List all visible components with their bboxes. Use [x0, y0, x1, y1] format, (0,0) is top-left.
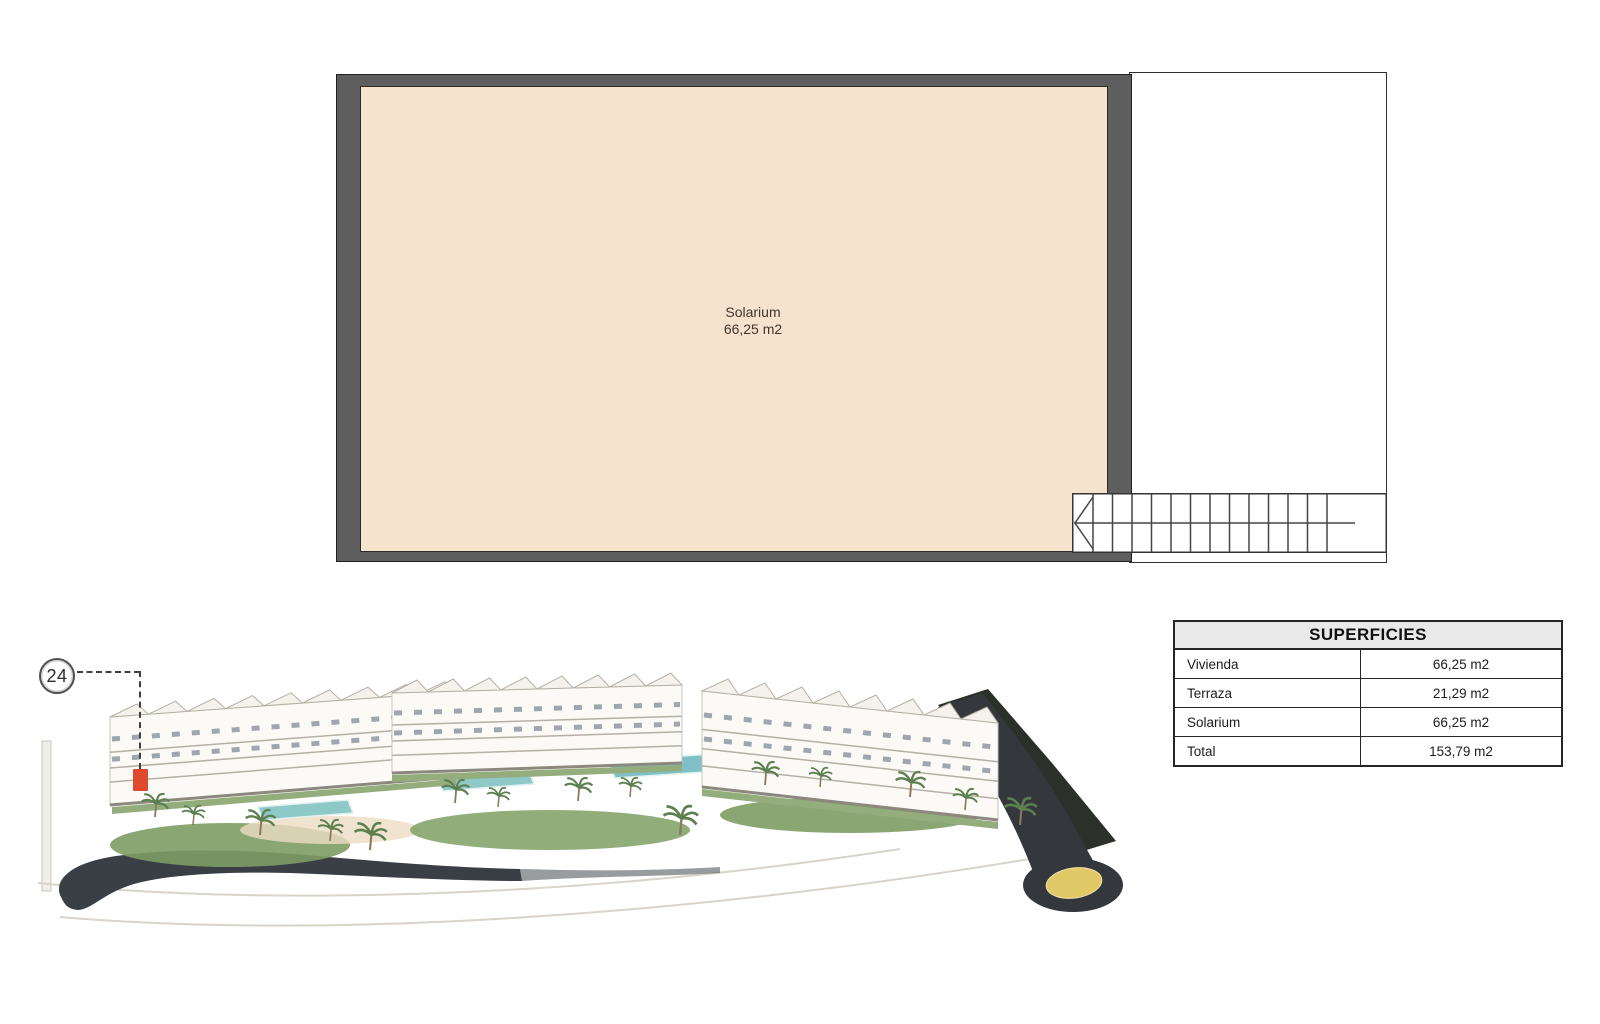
row-value: 153,79 m2 — [1361, 737, 1561, 765]
surfaces-table-title: SUPERFICIES — [1175, 622, 1561, 650]
row-value: 21,29 m2 — [1361, 679, 1561, 707]
surfaces-table: SUPERFICIES Vivienda 66,25 m2 Terraza 21… — [1173, 620, 1563, 767]
road-middle — [520, 867, 720, 881]
table-row: Solarium 66,25 m2 — [1175, 708, 1561, 737]
staircase — [1072, 493, 1387, 553]
room-name: Solarium — [725, 304, 780, 320]
unit-number-badge: 24 — [39, 658, 75, 694]
table-row: Total 153,79 m2 — [1175, 737, 1561, 765]
plan-sheet: Solarium 66,25 m2 24 — [0, 0, 1600, 1024]
row-label: Terraza — [1175, 679, 1361, 707]
unit-number: 24 — [46, 666, 67, 687]
stair-annex-outline — [1129, 72, 1387, 563]
room-area: 66,25 m2 — [724, 321, 782, 337]
table-row: Vivienda 66,25 m2 — [1175, 650, 1561, 679]
table-row: Terraza 21,29 m2 — [1175, 679, 1561, 708]
row-label: Total — [1175, 737, 1361, 765]
site-render — [30, 645, 1150, 955]
leader-line-horizontal — [77, 671, 140, 673]
unit-24-highlight — [133, 769, 148, 791]
row-value: 66,25 m2 — [1361, 650, 1561, 678]
row-label: Vivienda — [1175, 650, 1361, 678]
row-value: 66,25 m2 — [1361, 708, 1561, 736]
leader-line-vertical — [139, 671, 141, 769]
building-middle — [392, 673, 682, 782]
boundary-wall — [42, 741, 51, 891]
row-label: Solarium — [1175, 708, 1361, 736]
